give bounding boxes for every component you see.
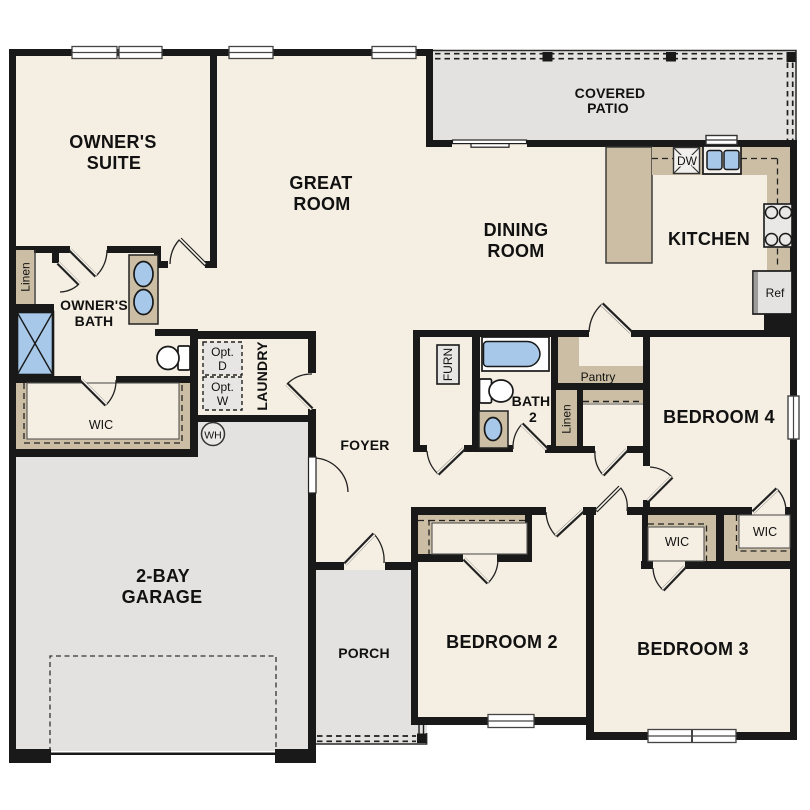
svg-text:WIC: WIC — [665, 535, 689, 549]
svg-text:ROOM: ROOM — [487, 241, 544, 261]
svg-text:WIC: WIC — [753, 525, 777, 539]
svg-text:W: W — [217, 394, 229, 408]
svg-text:LAUNDRY: LAUNDRY — [254, 341, 270, 411]
svg-text:WIC: WIC — [89, 418, 113, 432]
svg-text:COVERED: COVERED — [575, 85, 646, 101]
svg-text:OWNER'S: OWNER'S — [60, 297, 128, 313]
svg-text:BATH: BATH — [512, 393, 551, 409]
svg-text:Opt.: Opt. — [211, 380, 234, 394]
svg-text:BEDROOM 2: BEDROOM 2 — [446, 632, 558, 652]
svg-text:GARAGE: GARAGE — [122, 587, 203, 607]
svg-text:BATH: BATH — [75, 313, 114, 329]
svg-text:GREAT: GREAT — [289, 173, 352, 193]
svg-text:ROOM: ROOM — [293, 194, 350, 214]
svg-text:2-BAY: 2-BAY — [136, 566, 190, 586]
svg-text:BEDROOM 3: BEDROOM 3 — [637, 639, 749, 659]
svg-text:FOYER: FOYER — [340, 437, 389, 453]
svg-text:Ref: Ref — [766, 286, 785, 300]
svg-text:SUITE: SUITE — [87, 153, 142, 173]
svg-text:D: D — [218, 359, 227, 373]
svg-text:2: 2 — [529, 409, 537, 425]
svg-text:PATIO: PATIO — [587, 100, 629, 116]
svg-text:BEDROOM 4: BEDROOM 4 — [663, 407, 775, 427]
svg-text:DW: DW — [677, 154, 698, 168]
svg-text:DINING: DINING — [484, 220, 549, 240]
svg-text:Opt.: Opt. — [211, 345, 234, 359]
svg-text:Linen: Linen — [19, 262, 33, 291]
svg-text:Pantry: Pantry — [581, 370, 616, 384]
svg-text:FURN: FURN — [441, 348, 455, 381]
svg-text:KITCHEN: KITCHEN — [668, 229, 750, 249]
svg-text:PORCH: PORCH — [338, 645, 390, 661]
svg-text:OWNER'S: OWNER'S — [69, 132, 156, 152]
svg-text:WH: WH — [204, 430, 222, 442]
svg-text:Linen: Linen — [560, 404, 574, 433]
